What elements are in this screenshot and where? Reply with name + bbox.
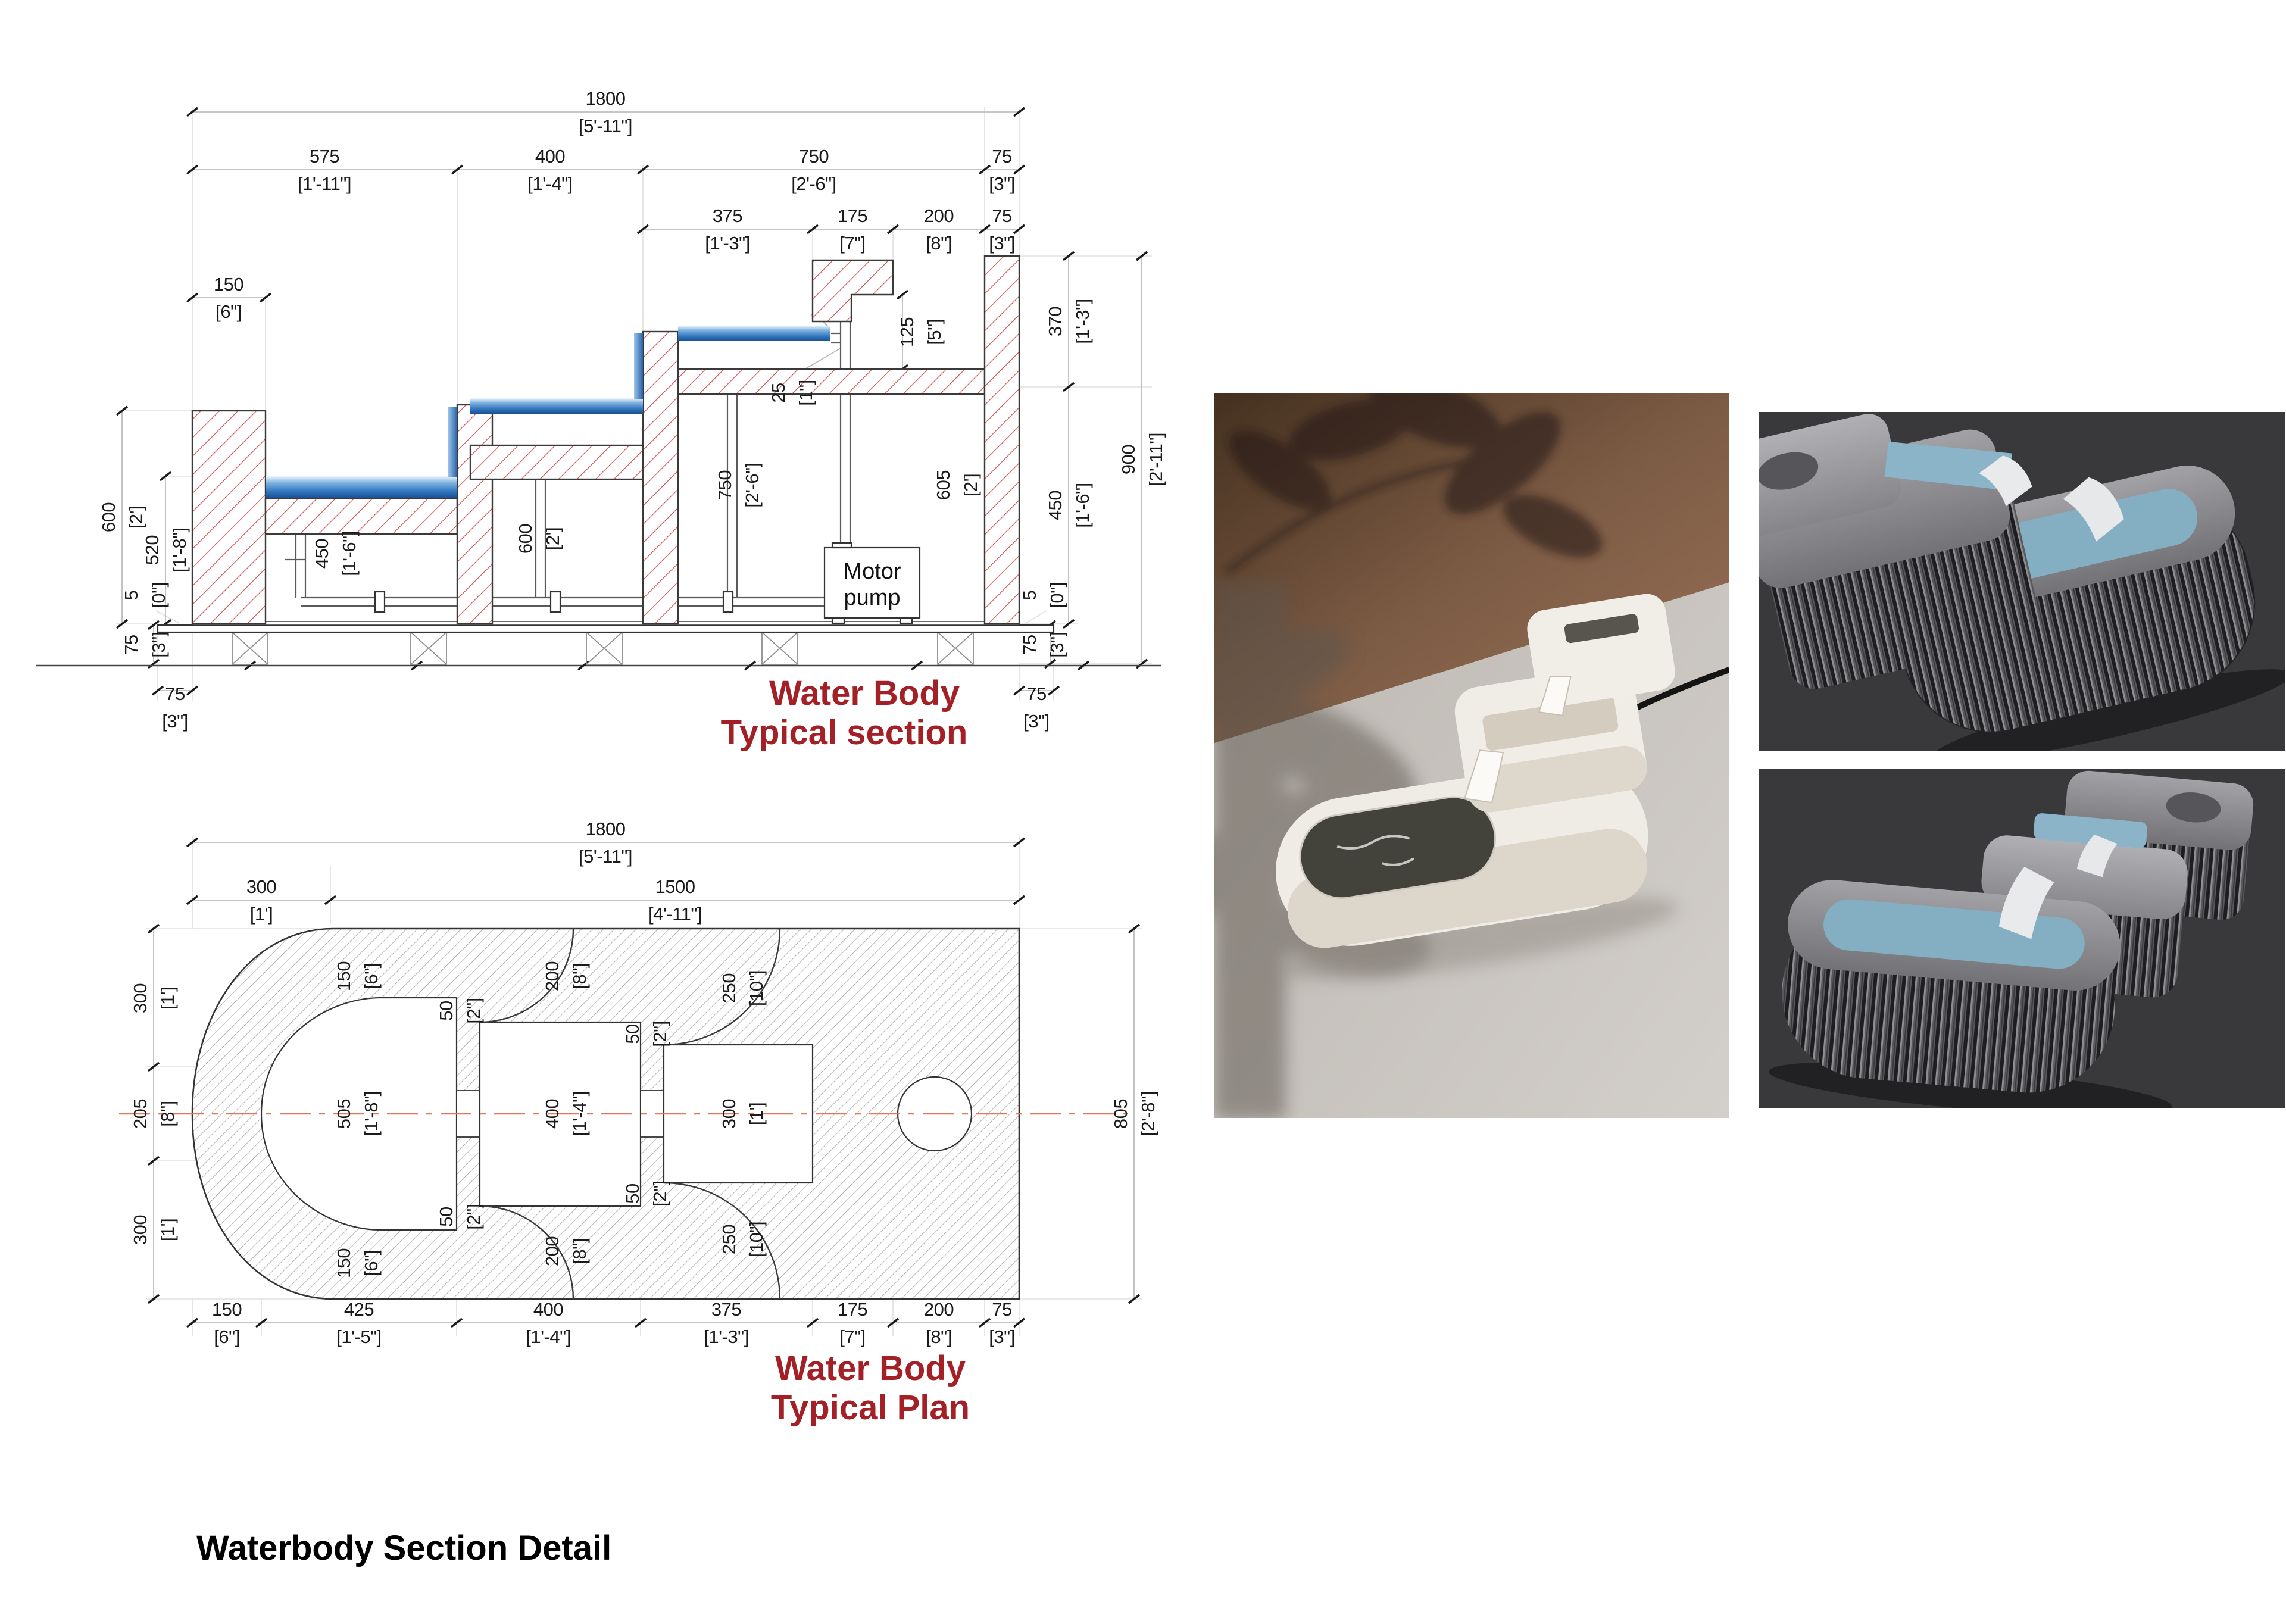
svg-text:[6"]: [6"] xyxy=(214,1326,239,1347)
pool2-water xyxy=(470,398,643,414)
svg-text:75: 75 xyxy=(1026,683,1046,704)
svg-text:[1'-5"]: [1'-5"] xyxy=(336,1326,381,1347)
svg-text:150: 150 xyxy=(333,1248,354,1278)
sheet-caption: Waterbody Section Detail xyxy=(196,1529,611,1567)
svg-text:[3"]: [3"] xyxy=(989,1326,1014,1347)
svg-text:[1"]: [1"] xyxy=(795,380,816,405)
svg-text:400: 400 xyxy=(533,1299,563,1320)
svg-text:[6"]: [6"] xyxy=(216,301,241,322)
svg-text:505: 505 xyxy=(333,1099,354,1129)
svg-text:300: 300 xyxy=(130,1215,151,1245)
svg-text:[1'-8"]: [1'-8"] xyxy=(361,1091,382,1136)
svg-text:[3"]: [3"] xyxy=(1047,632,1067,657)
svg-text:75: 75 xyxy=(992,1299,1011,1320)
pool1-water xyxy=(266,476,457,498)
svg-text:[3"]: [3"] xyxy=(148,632,169,657)
svg-text:[1'-4"]: [1'-4"] xyxy=(526,1326,570,1347)
svg-text:[2']: [2'] xyxy=(126,506,146,529)
svg-text:[8"]: [8"] xyxy=(569,1238,590,1264)
svg-text:300: 300 xyxy=(246,876,276,897)
svg-text:205: 205 xyxy=(130,1099,151,1129)
svg-text:370: 370 xyxy=(1045,307,1066,336)
svg-text:[2'-8"]: [2'-8"] xyxy=(1138,1091,1158,1136)
svg-text:200: 200 xyxy=(924,205,954,226)
svg-text:1800: 1800 xyxy=(586,88,626,109)
right-wall xyxy=(985,256,1019,624)
svg-text:150: 150 xyxy=(214,274,243,295)
svg-text:600: 600 xyxy=(515,524,536,554)
pedestals xyxy=(232,632,973,664)
basin3-floor xyxy=(678,369,985,394)
svg-text:[2'-11"]: [2'-11"] xyxy=(1145,433,1166,486)
basin2-floor xyxy=(470,445,643,479)
svg-text:[1'-3"]: [1'-3"] xyxy=(1072,299,1093,343)
dim-sec-75bl: 75[3"] xyxy=(162,683,188,732)
svg-text:75: 75 xyxy=(121,635,142,654)
svg-text:[1'-3"]: [1'-3"] xyxy=(705,233,749,254)
dim-sec-75l: 75[3"] xyxy=(121,632,169,657)
svg-text:75: 75 xyxy=(992,205,1011,226)
svg-text:450: 450 xyxy=(1045,491,1066,520)
svg-text:50: 50 xyxy=(622,1183,643,1204)
svg-text:[2']: [2'] xyxy=(960,474,981,496)
svg-text:805: 805 xyxy=(1110,1099,1131,1129)
cascade2 xyxy=(634,333,643,399)
svg-text:200: 200 xyxy=(542,961,563,991)
dim-sec-d450: 450[1'-6"] xyxy=(311,531,360,576)
plan-title-line2: Typical Plan xyxy=(771,1388,970,1427)
pump-label-1: Motor xyxy=(843,559,901,584)
svg-text:[1']: [1'] xyxy=(250,904,273,925)
pool3-water xyxy=(678,326,830,341)
svg-text:[0"]: [0"] xyxy=(148,582,169,608)
svg-text:[3"]: [3"] xyxy=(162,711,188,732)
base-slab xyxy=(158,625,1054,632)
pump-label-2: pump xyxy=(844,585,900,610)
svg-text:300: 300 xyxy=(719,1099,739,1129)
svg-text:[1'-11"]: [1'-11"] xyxy=(298,173,351,194)
wall2 xyxy=(457,405,492,624)
svg-text:[2"]: [2"] xyxy=(463,1204,484,1229)
svg-text:425: 425 xyxy=(344,1299,374,1320)
wall3 xyxy=(643,332,678,624)
section-title-line2: Typical section xyxy=(721,713,968,752)
render-top xyxy=(1716,334,2286,810)
svg-text:75: 75 xyxy=(165,683,185,704)
svg-text:375: 375 xyxy=(713,205,742,226)
dim-sec-125: 125[5"] xyxy=(897,317,945,347)
svg-text:250: 250 xyxy=(719,973,739,1003)
dim-sec-5l: 5[0"] xyxy=(121,582,169,608)
svg-text:[0"]: [0"] xyxy=(1047,582,1067,608)
svg-text:[4'-11"]: [4'-11"] xyxy=(648,904,702,925)
svg-text:1800: 1800 xyxy=(586,819,626,839)
svg-text:175: 175 xyxy=(838,1299,867,1320)
svg-text:575: 575 xyxy=(310,146,339,167)
svg-text:[2']: [2'] xyxy=(542,527,563,550)
spout-shelf xyxy=(813,260,893,321)
svg-text:[2'-6"]: [2'-6"] xyxy=(791,173,836,194)
svg-text:25: 25 xyxy=(768,383,789,402)
cascade1 xyxy=(448,407,457,477)
dim-sec-75r: 75[3"] xyxy=(1019,632,1067,657)
svg-text:605: 605 xyxy=(933,470,954,500)
svg-text:[2'-6"]: [2'-6"] xyxy=(742,463,763,507)
dim-sec-5r: 5[0"] xyxy=(1019,582,1067,608)
svg-text:150: 150 xyxy=(212,1299,242,1320)
section-title-line1: Water Body xyxy=(769,674,960,713)
svg-text:600: 600 xyxy=(98,502,119,532)
svg-text:[3"]: [3"] xyxy=(989,173,1014,194)
svg-text:[8"]: [8"] xyxy=(926,1326,951,1347)
svg-text:5: 5 xyxy=(121,591,142,601)
plan-title-line1: Water Body xyxy=(775,1349,966,1388)
svg-text:[7"]: [7"] xyxy=(839,233,865,254)
dim-sec-d600: 600[2'] xyxy=(515,524,563,554)
svg-text:[1'-4"]: [1'-4"] xyxy=(527,173,572,194)
svg-text:[1'-8"]: [1'-8"] xyxy=(169,527,190,572)
svg-text:[5'-11"]: [5'-11"] xyxy=(579,115,632,136)
leveling-layer xyxy=(192,622,1019,625)
svg-text:75: 75 xyxy=(1019,635,1040,654)
svg-text:750: 750 xyxy=(799,146,829,167)
sheet-svg: Motor pump 1800[5'-11"] 575[1'-11"] 400[… xyxy=(0,0,2286,1624)
svg-text:[2"]: [2"] xyxy=(649,1021,670,1047)
svg-text:[2"]: [2"] xyxy=(463,998,484,1023)
drawing-sheet: Motor pump 1800[5'-11"] 575[1'-11"] 400[… xyxy=(0,0,2286,1624)
svg-text:[8"]: [8"] xyxy=(569,963,590,989)
plan-drawing: 1800[5'-11"] 300[1'] 1500[4'-11"] 300[1'… xyxy=(119,819,1158,1427)
section-drawing: Motor pump 1800[5'-11"] 575[1'-11"] 400[… xyxy=(36,88,1166,752)
svg-text:[1']: [1'] xyxy=(157,987,178,1010)
svg-text:[5'-11"]: [5'-11"] xyxy=(579,846,632,867)
svg-text:520: 520 xyxy=(142,535,163,565)
svg-text:[7"]: [7"] xyxy=(839,1326,865,1347)
svg-text:200: 200 xyxy=(542,1236,563,1266)
svg-text:750: 750 xyxy=(714,470,735,500)
svg-text:[8"]: [8"] xyxy=(926,233,951,254)
svg-text:[10"]: [10"] xyxy=(746,970,767,1006)
svg-text:250: 250 xyxy=(719,1225,739,1254)
svg-text:[3"]: [3"] xyxy=(989,233,1014,254)
svg-text:375: 375 xyxy=(711,1299,741,1320)
svg-text:75: 75 xyxy=(992,146,1011,167)
svg-text:[1'-3"]: [1'-3"] xyxy=(704,1326,748,1347)
svg-text:900: 900 xyxy=(1118,445,1139,474)
svg-text:[1']: [1'] xyxy=(746,1103,767,1125)
svg-text:50: 50 xyxy=(436,1001,457,1021)
svg-text:200: 200 xyxy=(924,1299,954,1320)
svg-text:50: 50 xyxy=(436,1207,457,1227)
svg-text:[1']: [1'] xyxy=(157,1219,178,1241)
svg-text:450: 450 xyxy=(311,539,332,569)
dim-sec-d750: 750[2'-6"] xyxy=(714,463,763,507)
svg-text:[6"]: [6"] xyxy=(361,963,382,989)
svg-text:5: 5 xyxy=(1019,591,1040,601)
svg-text:[1'-4"]: [1'-4"] xyxy=(569,1091,590,1136)
svg-text:[8"]: [8"] xyxy=(157,1101,178,1126)
render-bottom xyxy=(1759,745,2285,1132)
svg-text:150: 150 xyxy=(333,961,354,991)
motor-pump: Motor pump xyxy=(825,543,920,623)
photo-fountain xyxy=(1151,361,1729,1119)
dim-sec-75br: 75[3"] xyxy=(1023,683,1049,732)
svg-text:[3"]: [3"] xyxy=(1023,711,1049,732)
svg-text:400: 400 xyxy=(542,1099,563,1129)
svg-text:[2"]: [2"] xyxy=(649,1180,670,1206)
svg-text:125: 125 xyxy=(897,317,917,347)
left-wall xyxy=(192,411,266,624)
svg-text:[1'-6"]: [1'-6"] xyxy=(339,531,360,576)
svg-text:400: 400 xyxy=(535,146,565,167)
svg-text:50: 50 xyxy=(622,1024,643,1044)
basin1-floor xyxy=(266,498,457,534)
svg-text:[1'-6"]: [1'-6"] xyxy=(1072,483,1093,527)
svg-text:300: 300 xyxy=(130,983,151,1013)
svg-text:175: 175 xyxy=(838,205,867,226)
dim-sec-d605: 605[2'] xyxy=(933,470,981,500)
svg-text:[10"]: [10"] xyxy=(746,1222,767,1257)
svg-text:[6"]: [6"] xyxy=(361,1250,382,1276)
svg-text:[5"]: [5"] xyxy=(924,319,945,345)
svg-text:1500: 1500 xyxy=(655,876,695,897)
